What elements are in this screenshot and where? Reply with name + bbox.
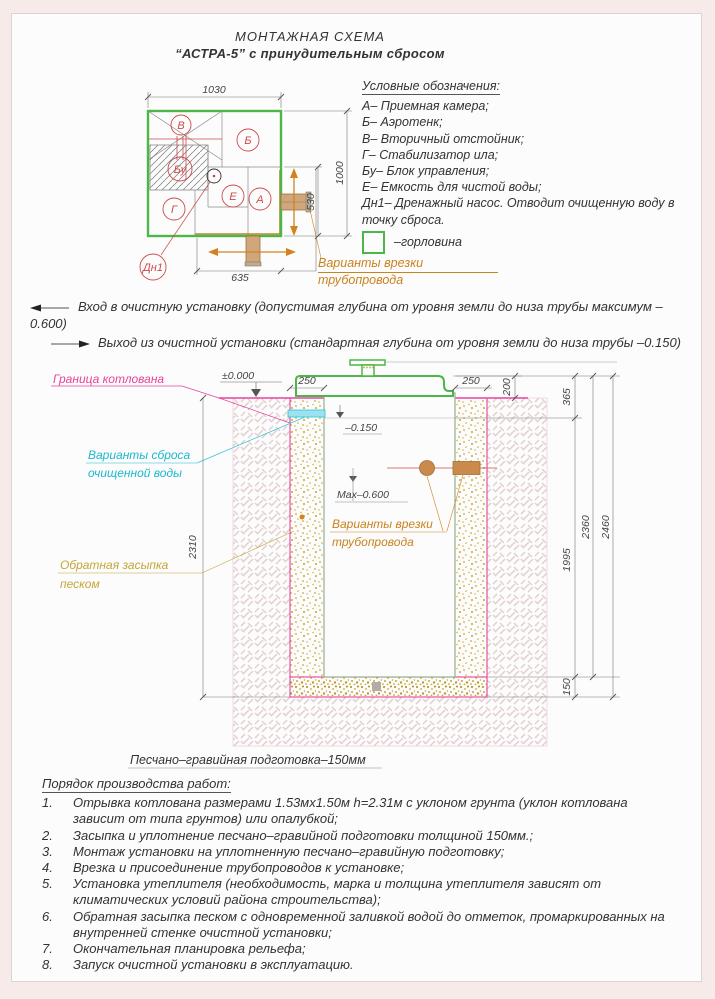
plan-pipe-note-line2: трубопровода: [318, 273, 403, 287]
procedure-item-text: Монтаж установки на уплотненную песчано–…: [73, 844, 673, 860]
procedure-item-text: Установка утеплителя (необходимость, мар…: [73, 876, 673, 908]
inlet-note: Вход в очистную установку (допустимая гл…: [30, 299, 688, 332]
procedure-item-num: 2.: [30, 828, 73, 844]
procedure-item-num: 7.: [30, 941, 73, 957]
legend-item: Бу– Блок управления;: [362, 163, 694, 179]
title-line1: МОНТАЖНАЯ СХЕМА: [100, 28, 520, 45]
procedure-item-text: Обратная засыпка песком с одновременной …: [73, 909, 673, 941]
title-line2: “АСТРА-5” с принудительным сбросом: [100, 45, 520, 62]
dim-2310-text: 2310: [187, 535, 199, 560]
dim-2360: 2360: [580, 515, 592, 540]
label-dn1: Дн1: [141, 262, 163, 274]
outlet-note-text: Выход из очистной установки (стандартная…: [98, 335, 681, 350]
sand-backfill-right: [455, 400, 487, 677]
procedure-item-text: Засыпка и уплотнение песчано–гравийной п…: [73, 828, 673, 844]
io-notes: Вход в очистную установку (допустимая гл…: [30, 299, 688, 355]
dim-2460: 2460: [600, 515, 612, 540]
legend: Условные обозначения: А– Приемная камера…: [362, 78, 694, 254]
inlet-note-text: Вход в очистную установку (допустимая гл…: [30, 299, 663, 331]
dim-365: 365: [561, 388, 573, 406]
procedure-item: 5. Установка утеплителя (необходимость, …: [30, 876, 690, 908]
tank-lid: [296, 376, 453, 396]
dim-150: 150: [561, 678, 573, 696]
discharge-label-line1: Варианты сброса: [88, 448, 191, 462]
dim-250-right: 250: [461, 375, 480, 387]
procedure-item-text: Врезка и присоединение трубопроводов к у…: [73, 860, 673, 876]
procedure-item: 8. Запуск очистной установки в эксплуата…: [30, 957, 690, 973]
outlet-note: Выход из очистной установки (стандартная…: [30, 335, 688, 352]
pit-boundary-label: Граница котлована: [51, 372, 219, 398]
label-g: Г: [171, 204, 178, 216]
backfill-text-line2: песком: [60, 577, 100, 591]
drawing-title: МОНТАЖНАЯ СХЕМА “АСТРА-5” с принудительн…: [100, 28, 520, 62]
plan-dim-width: 1030: [202, 84, 226, 96]
plan-pipe-note: Варианты врезки трубопровода: [318, 256, 508, 288]
legend-item: Г– Стабилизатор ила;: [362, 147, 694, 163]
dim-1995: 1995: [561, 548, 573, 572]
inlet-arrow-icon: [30, 303, 70, 313]
label-b: Б: [244, 135, 251, 147]
legend-item: А– Приемная камера;: [362, 98, 694, 114]
dim-250-left: 250: [297, 375, 316, 387]
discharge-label: Варианты сброса очищенной воды: [86, 448, 197, 480]
procedure-item-num: 8.: [30, 957, 73, 973]
gravel-bed: [290, 677, 487, 697]
label-bu: Бу: [174, 164, 188, 176]
legend-item: В– Вторичный отстойник;: [362, 131, 694, 147]
legend-gorlovina: –горловина: [362, 231, 694, 254]
legend-item: Е– Емкость для чистой воды;: [362, 179, 694, 195]
procedure-item-num: 4.: [30, 860, 73, 876]
plan-pipe-leader: [310, 210, 321, 258]
plan-pipe-note-line1: Варианты врезки: [318, 256, 498, 273]
procedure-item-text: Отрывка котлована размерами 1.53мх1.50м …: [73, 795, 673, 827]
procedure-item: 3. Монтаж установки на уплотненную песча…: [30, 844, 690, 860]
plan-dim-pipe-bottom: 635: [231, 272, 249, 284]
procedure-item-text: Окончательная планировка рельефа;: [73, 941, 673, 957]
collar-swatch-icon: [362, 231, 385, 254]
procedure-item: 4. Врезка и присоединение трубопроводов …: [30, 860, 690, 876]
section-pipe-note-line1: Варианты врезки: [332, 517, 433, 531]
procedure-item-num: 1.: [30, 795, 73, 827]
section-pipe-note-line2: трубопровода: [332, 535, 414, 549]
legend-item: Дн1– Дренажный насос. Отводит очищенную …: [362, 195, 694, 227]
procedure-list: Порядок производства работ: 1. Отрывка к…: [30, 776, 690, 973]
zero-level-text: ±0.000: [222, 370, 254, 382]
page: { "title": { "line1": "МОНТАЖНАЯ СХЕМА",…: [0, 0, 715, 999]
procedure-item-num: 3.: [30, 844, 73, 860]
gorlovina-label: –горловина: [394, 234, 462, 250]
section-view: ±0.000 –0.150 Max–0.600 Варианты врезки …: [30, 355, 630, 775]
procedure-item: 2. Засыпка и уплотнение песчано–гравийно…: [30, 828, 690, 844]
bed-marker: [372, 682, 381, 691]
procedure-item: 6. Обратная засыпка песком с одновременн…: [30, 909, 690, 941]
procedure-item-num: 6.: [30, 909, 73, 941]
procedure-item-text: Запуск очистной установки в эксплуатацию…: [73, 957, 673, 973]
label-e: Е: [229, 191, 237, 203]
zero-level-mark: ±0.000: [220, 370, 282, 397]
bed-label: Песчано–гравийная подготовка–150мм: [130, 753, 366, 767]
label-a: А: [255, 194, 263, 206]
procedure-item: 1. Отрывка котлована размерами 1.53мх1.5…: [30, 795, 690, 827]
procedure-item: 7. Окончательная планировка рельефа;: [30, 941, 690, 957]
discharge-label-line2: очищенной воды: [88, 466, 182, 480]
dim-200: 200: [501, 378, 513, 397]
plan-compartment-texts: В Б Бу Е А Г Дн1: [141, 120, 264, 274]
plan-bottom-pipe: [245, 236, 261, 266]
legend-item: Б– Аэротенк;: [362, 114, 694, 130]
plan-dim-pipe-side: 530: [305, 193, 317, 211]
procedure-item-num: 5.: [30, 876, 73, 908]
legend-title: Условные обозначения:: [362, 78, 500, 95]
label-v: В: [177, 120, 184, 132]
procedure-title: Порядок производства работ:: [42, 776, 231, 793]
backfill-text-line1: Обратная засыпка: [60, 558, 169, 572]
plan-dim-height: 1000: [334, 161, 346, 185]
max-600-text: Max–0.600: [337, 489, 389, 501]
outlet-arrow-icon: [50, 339, 90, 349]
level-150-text: –0.150: [344, 422, 377, 434]
pit-boundary-text: Граница котлована: [53, 372, 164, 386]
sand-backfill-left: [290, 400, 324, 677]
